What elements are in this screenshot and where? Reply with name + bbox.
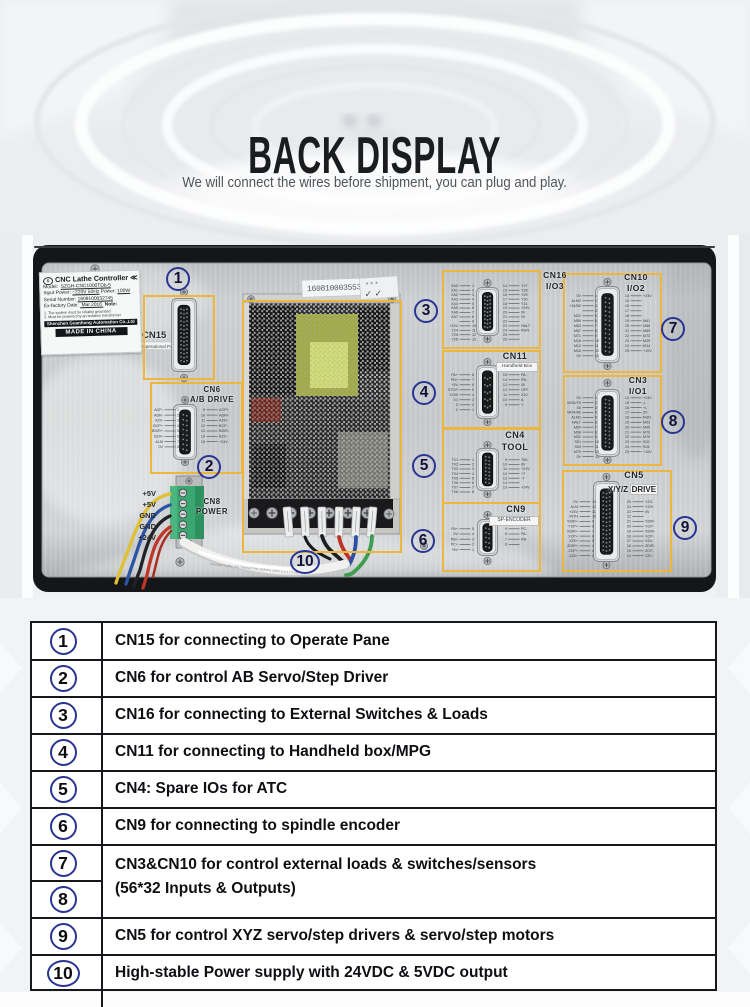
svg-text:GND: GND: [139, 522, 156, 531]
svg-text:+5V: +5V: [142, 489, 156, 498]
svg-text:+5V: +5V: [142, 500, 156, 509]
svg-text:✓ ✓: ✓ ✓: [364, 288, 382, 299]
svg-text:+24V: +24V: [138, 533, 156, 542]
svg-text:GND: GND: [139, 511, 156, 520]
